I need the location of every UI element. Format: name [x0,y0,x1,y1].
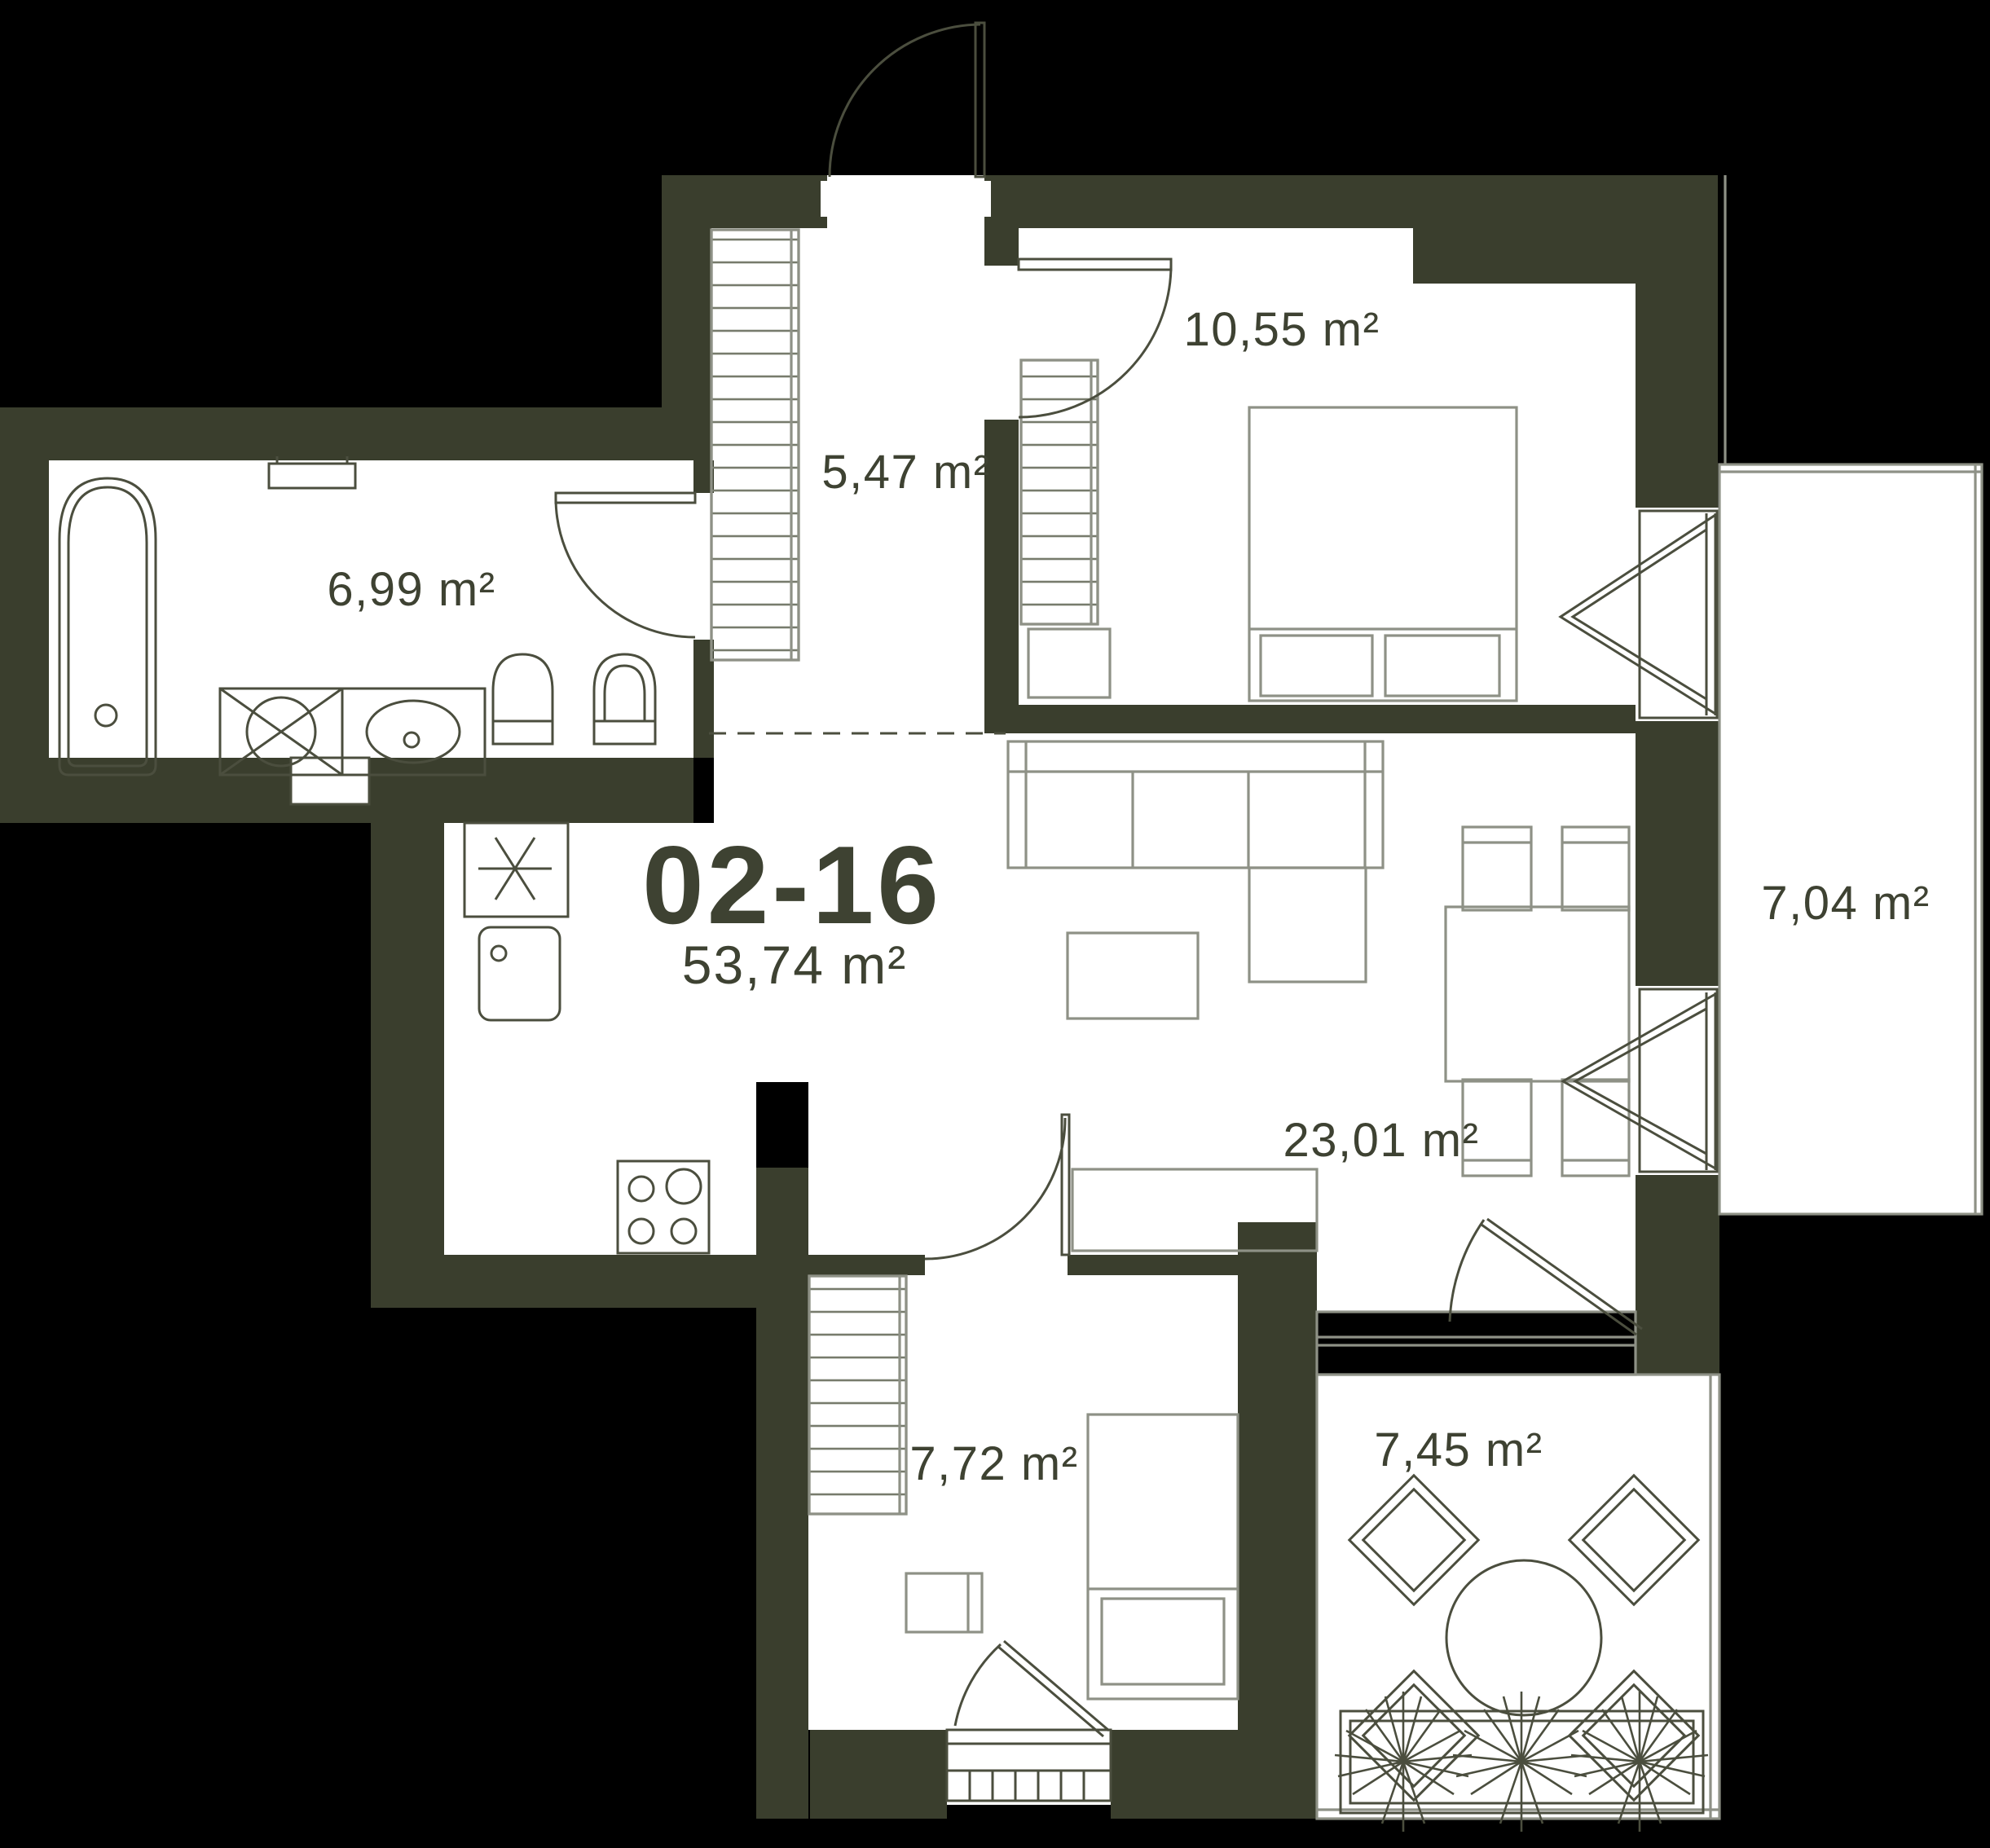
wall-right-mid [1636,721,1719,986]
wall-right-lower [1636,1175,1719,1375]
terrace-area-label: 7,45 m² [1374,1423,1543,1476]
floor-plan-canvas: 10,55 m² 5,47 m² 6,99 m² 7,04 m² 23,01 m… [0,0,1990,1848]
unit-number-label: 02-16 [642,823,942,947]
wall-kids-bottom-b [1111,1730,1238,1819]
wall-kids-bottom-a [810,1730,947,1819]
bedroom-area-label: 10,55 m² [1184,303,1380,356]
entrance-jamb-left [821,181,829,217]
wall-bathroom-top [0,407,662,460]
hallway-closet-symbol [711,230,799,660]
living-floor [756,733,1636,1312]
wall-kids-right [1238,1222,1317,1819]
wall-kids-top-a [808,1255,925,1275]
kids-balcony-door-opening [947,1730,1111,1805]
wall-top-right [984,175,1413,228]
wall-top-corner-step [1413,175,1718,284]
bathroom-niche [291,758,369,804]
unit-total-area-label: 53,74 m² [682,935,907,995]
wall-bedroom-bottom [1006,705,1719,733]
balcony-area-label: 7,04 m² [1761,877,1930,930]
structural-column [756,1082,808,1168]
wall-bedroom-hall-upper [984,228,1019,266]
balcony-floor [1719,464,1982,1214]
wall-kids-left [756,1168,808,1819]
entrance-opening [827,175,984,228]
wall-kids-top-b [1068,1255,1238,1275]
floor-plan: 10,55 m² 5,47 m² 6,99 m² 7,04 m² 23,01 m… [0,0,1990,1848]
wall-kitchen-left [371,823,444,1308]
hallway-area-label: 5,47 m² [821,446,990,499]
wall-kitchen-bottom [371,1255,756,1308]
living-area-label: 23,01 m² [1283,1114,1480,1167]
bedroom-door-opening [984,266,1019,420]
wall-hallway-left [662,175,711,460]
kids-room-area-label: 7,72 m² [909,1437,1078,1490]
entrance-jamb-right [983,181,991,217]
bathroom-area-label: 6,99 m² [327,563,495,616]
bedroom-wardrobe-symbol [1021,360,1098,624]
kids-wardrobe-symbol [809,1276,906,1514]
wall-bedroom-right [1636,284,1718,508]
